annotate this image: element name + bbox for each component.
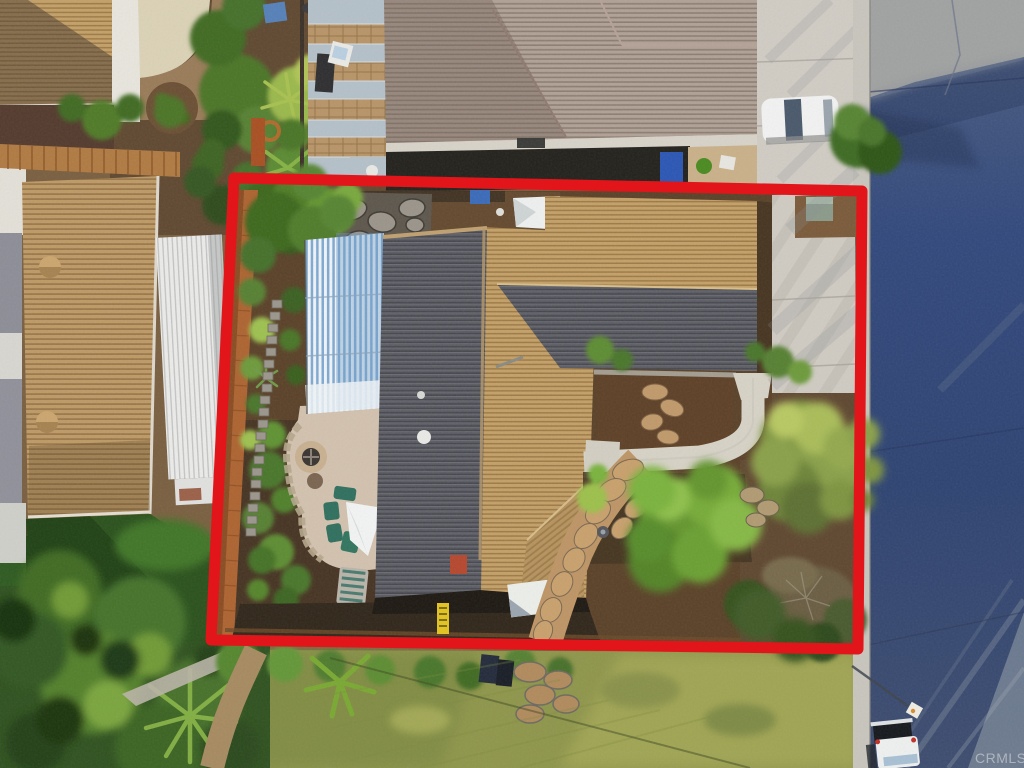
svg-text:CRMLS: CRMLS — [975, 750, 1024, 766]
